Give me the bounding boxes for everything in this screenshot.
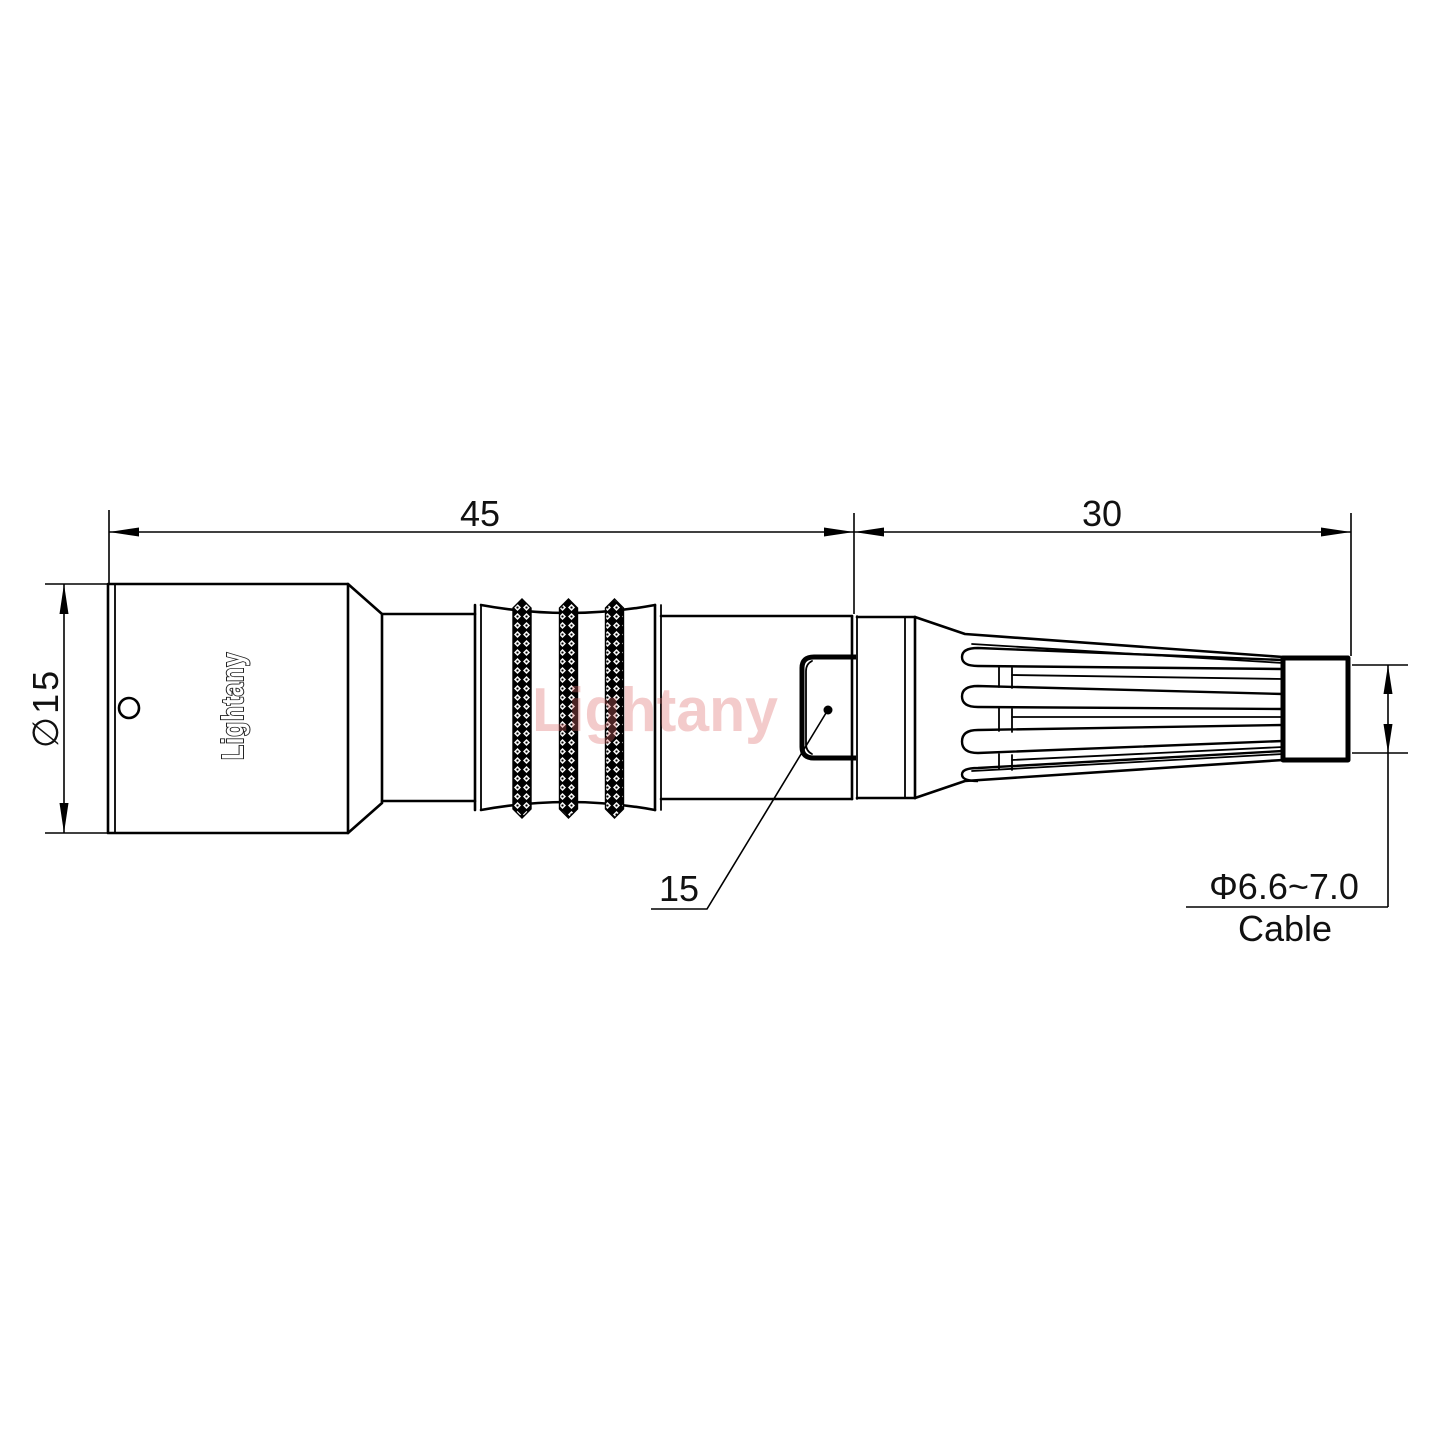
arrowhead-right [1321,528,1351,537]
boot-finger-2 [962,686,1283,709]
dimension-boot-length: 30 [854,493,1351,656]
technical-drawing-page: Lightany [0,0,1440,1440]
dim-label-30: 30 [1082,493,1122,534]
arrowhead-left [854,528,884,537]
arrowhead-left [109,528,139,537]
boot-finger-1 [962,648,1283,669]
strain-relief-boot [857,617,1283,798]
dimension-body-diameter: ∅15 [25,584,114,833]
leader-label-15: 15 [659,868,699,909]
latch-nut [802,657,856,758]
dim-label-dia15: ∅15 [25,668,66,748]
barrel-front-outline [382,614,475,801]
arrowhead-right [824,528,854,537]
body-rear-chamfer [348,584,382,833]
cable-text-label: Cable [1238,908,1332,949]
body-brand-label: Lightany [215,652,250,760]
cable-end-outline [1283,658,1348,760]
knurl-band-1 [513,599,531,818]
arrowhead-top [60,584,69,614]
arrowhead-bottom [60,803,69,833]
coupling-barrel-front [382,614,475,801]
connector-body: Lightany [108,584,382,833]
arrowhead-top [1384,665,1393,694]
watermark-text: Lightany [532,676,778,745]
arrowhead-bottom [1384,724,1393,753]
leader-dot [824,706,833,715]
boot-collar [857,617,915,798]
cable-end [1283,658,1348,760]
ext-lines [1352,665,1408,753]
boot-bottom-envelope [915,760,1283,798]
boot-ribs [999,667,1012,770]
technical-drawing-canvas: Lightany [0,0,1440,1440]
dim-label-cable-diameter: Φ6.6~7.0 [1209,866,1359,907]
dim-label-45: 45 [460,493,500,534]
dimension-overall-length: 45 [109,493,854,614]
release-hole [119,698,139,718]
